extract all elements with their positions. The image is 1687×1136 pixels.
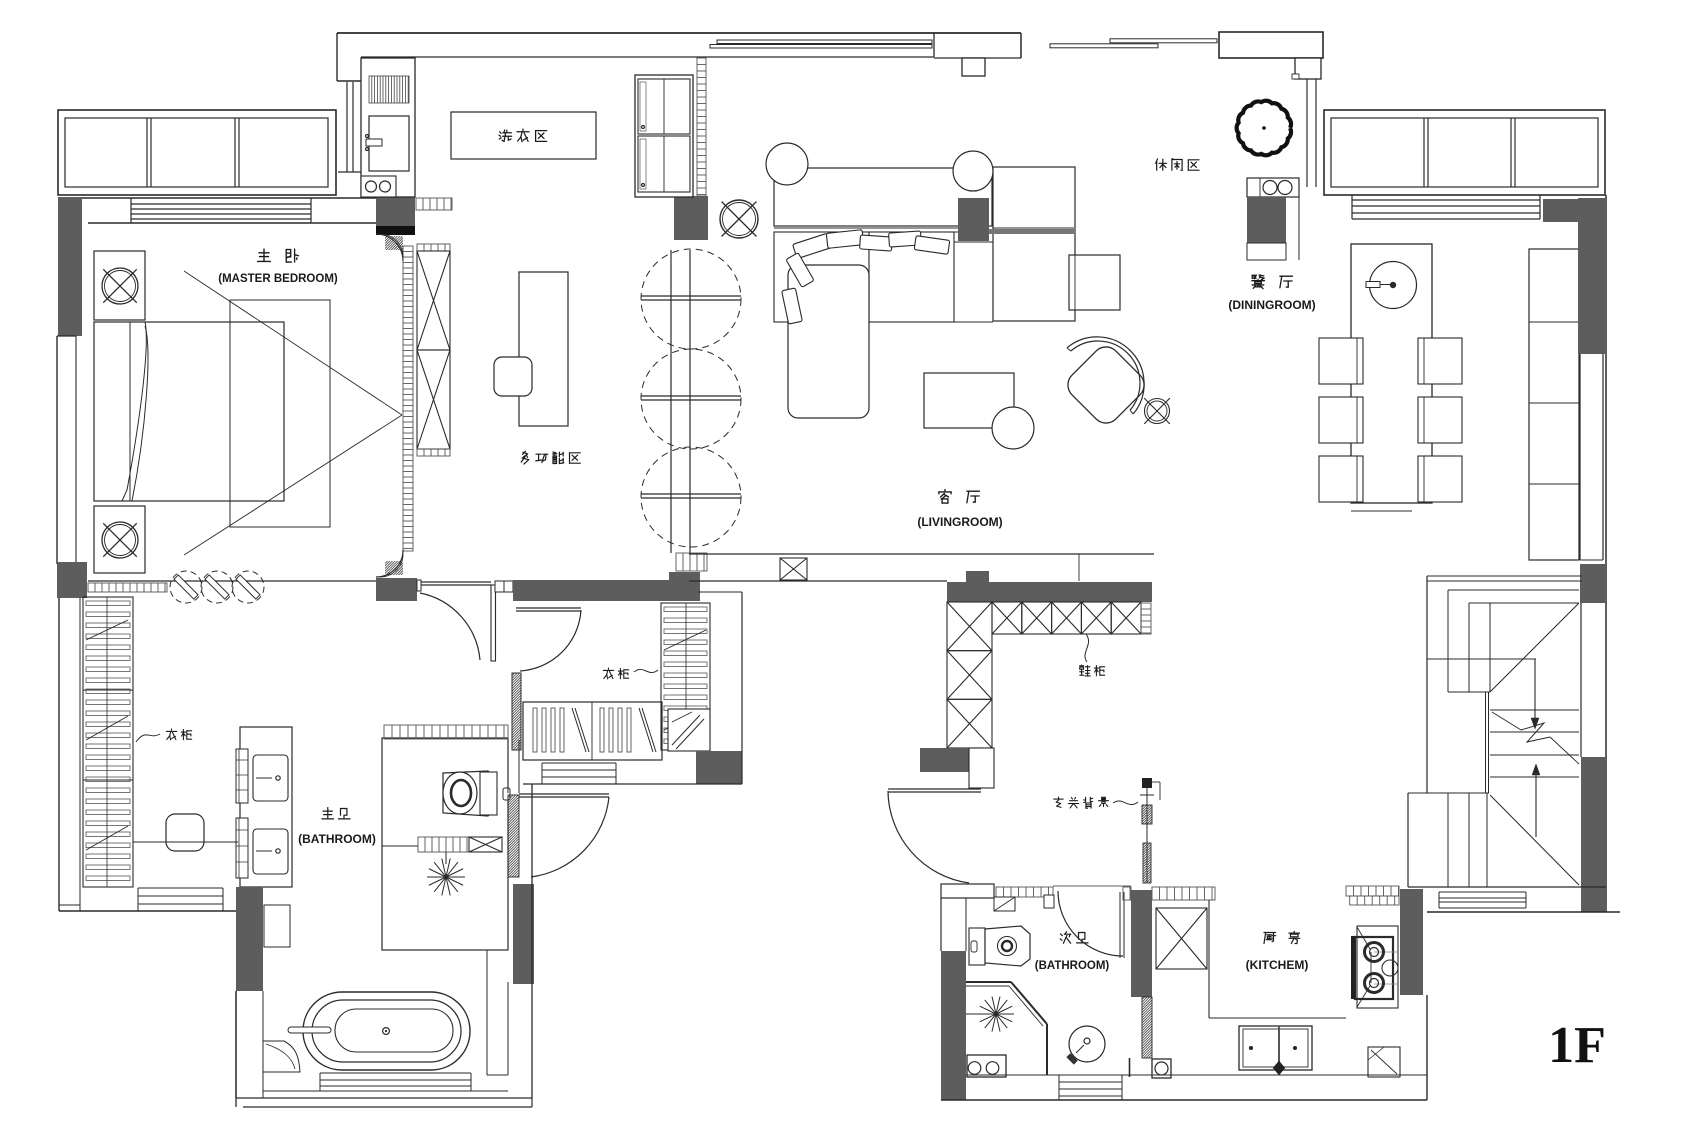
svg-text:(LIVINGROOM): (LIVINGROOM) xyxy=(917,515,1002,529)
svg-text:(BATHROOM): (BATHROOM) xyxy=(1035,960,1110,972)
svg-text:1F: 1F xyxy=(1548,1017,1606,1074)
svg-text:(KITCHEM): (KITCHEM) xyxy=(1246,958,1309,972)
svg-text:(BATHROOM): (BATHROOM) xyxy=(298,832,376,846)
svg-text:(DININGROOM): (DININGROOM) xyxy=(1228,298,1315,312)
svg-text:(MASTER BEDROOM): (MASTER BEDROOM) xyxy=(218,273,338,285)
